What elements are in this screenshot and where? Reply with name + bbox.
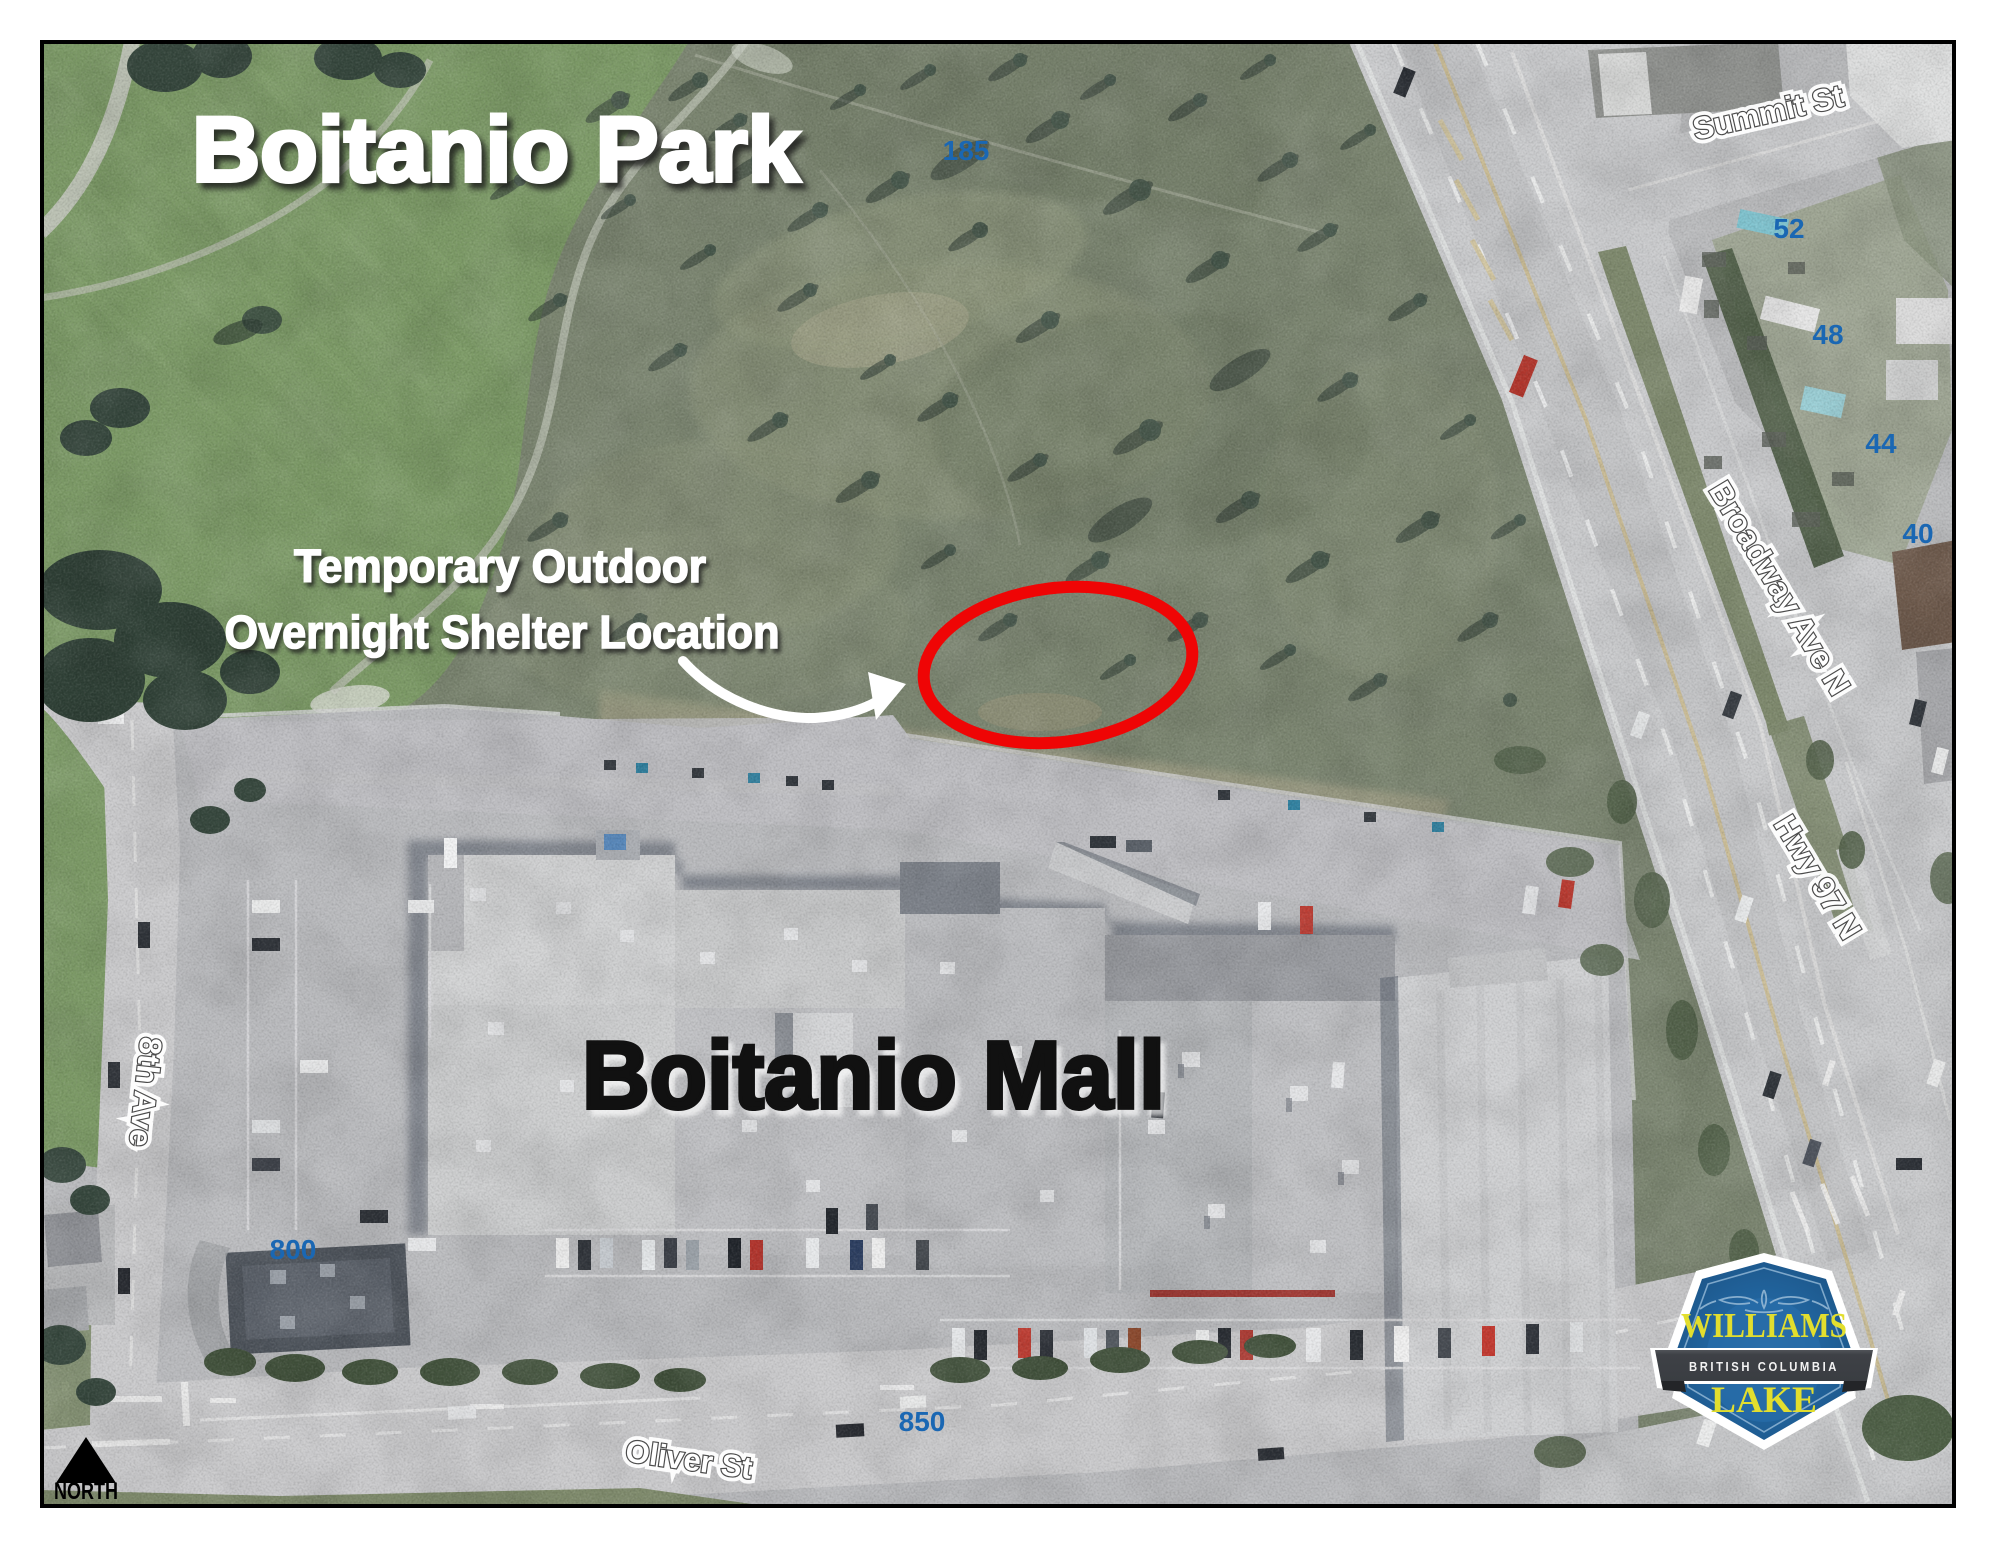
svg-text:800: 800 <box>270 1234 317 1265</box>
svg-text:Temporary Outdoor: Temporary Outdoor <box>294 540 706 592</box>
svg-text:850: 850 <box>899 1406 946 1437</box>
svg-text:52: 52 <box>1773 213 1804 244</box>
svg-text:NORTH: NORTH <box>54 1478 118 1505</box>
svg-text:Overnight Shelter Location: Overnight Shelter Location <box>225 606 780 658</box>
svg-text:44: 44 <box>1865 428 1897 459</box>
svg-text:48: 48 <box>1812 319 1843 350</box>
svg-text:Boitanio Park: Boitanio Park <box>192 99 801 201</box>
svg-text:185: 185 <box>943 135 990 166</box>
svg-text:WILLIAMS: WILLIAMS <box>1681 1306 1847 1345</box>
svg-text:LAKE: LAKE <box>1711 1380 1817 1421</box>
svg-text:Boitanio Mall: Boitanio Mall <box>582 1022 1165 1129</box>
svg-text:BRITISH COLUMBIA: BRITISH COLUMBIA <box>1689 1359 1839 1374</box>
svg-text:40: 40 <box>1902 518 1933 549</box>
